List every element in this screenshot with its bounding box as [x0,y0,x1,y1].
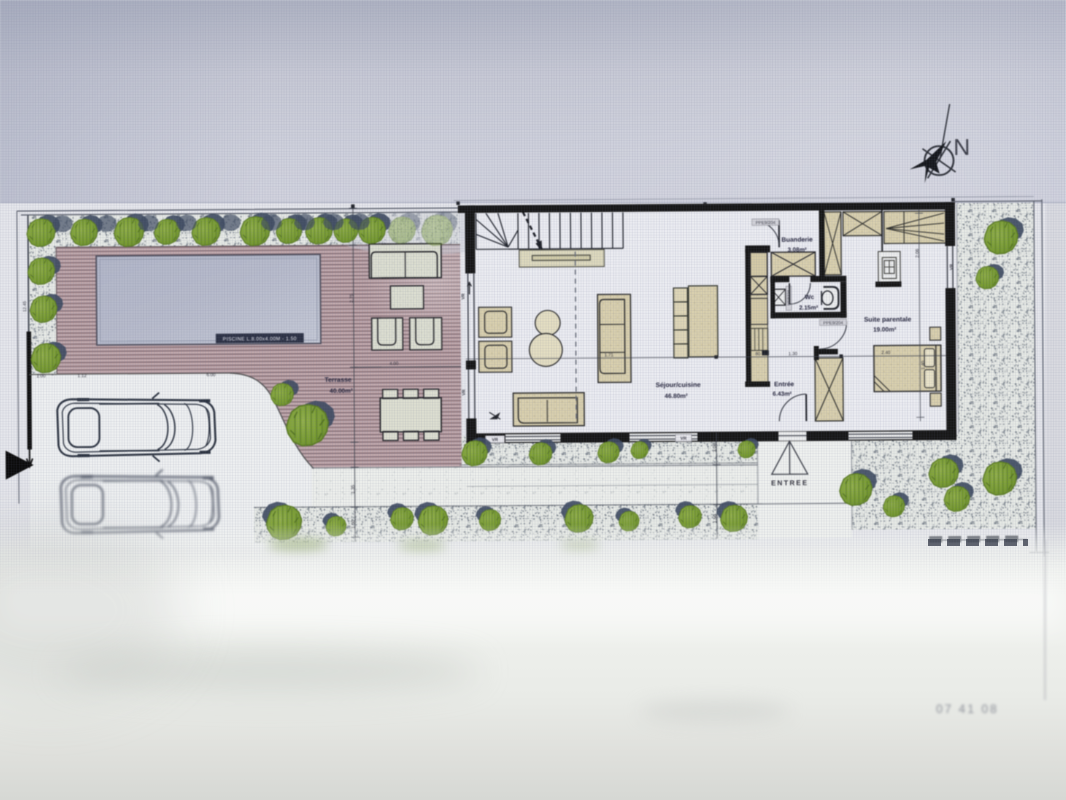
svg-text:1.35: 1.35 [350,484,355,493]
svg-text:1.71: 1.71 [604,352,613,357]
svg-text:N: N [953,134,970,160]
svg-text:1.30: 1.30 [788,351,797,356]
svg-text:1.00: 1.00 [37,373,46,378]
svg-text:6.00: 6.00 [207,372,216,377]
svg-text:1.50: 1.50 [351,519,356,528]
svg-text:1.12: 1.12 [78,373,87,378]
svg-text:3.08m²: 3.08m² [788,247,807,254]
svg-text:2.06: 2.06 [915,248,920,257]
svg-text:Terrasse: Terrasse [325,377,352,384]
svg-text:19.00m²: 19.00m² [873,326,896,333]
svg-text:PISCINE L.8.00x4.00M - 1.50: PISCINE L.8.00x4.00M - 1.50 [223,336,297,343]
svg-text:6.43m²: 6.43m² [773,391,792,398]
svg-text:3.08: 3.08 [712,443,717,452]
svg-text:Buanderie: Buanderie [781,237,813,244]
svg-text:2.75: 2.75 [349,293,354,302]
svg-text:12.45: 12.45 [22,300,27,312]
svg-text:1.50: 1.50 [713,514,718,523]
svg-text:4.00: 4.00 [389,361,398,366]
svg-text:40.00m²: 40.00m² [330,388,353,395]
svg-text:80: 80 [755,351,761,356]
svg-text:HSB334: HSB334 [786,289,791,305]
svg-text:VR: VR [492,437,499,442]
svg-text:VR: VR [460,293,465,300]
svg-text:VR: VR [680,436,687,441]
svg-text:Entrée: Entrée [774,381,794,388]
svg-text:PPE9/204: PPE9/204 [756,220,776,225]
svg-text:ENTREE: ENTREE [771,480,808,487]
svg-text:Wc: Wc [805,294,815,301]
svg-text:Suite parentale: Suite parentale [864,316,912,323]
svg-text:46.80m²: 46.80m² [665,393,688,400]
svg-text:Séjour/cuisine: Séjour/cuisine [656,382,701,389]
svg-text:VR: VR [461,389,466,396]
svg-text:PPE9/204: PPE9/204 [823,320,843,325]
svg-text:1.40: 1.40 [920,360,925,369]
svg-text:2.15m²: 2.15m² [799,304,818,311]
svg-text:VR: VR [949,263,954,270]
svg-text:2.40: 2.40 [881,350,890,355]
